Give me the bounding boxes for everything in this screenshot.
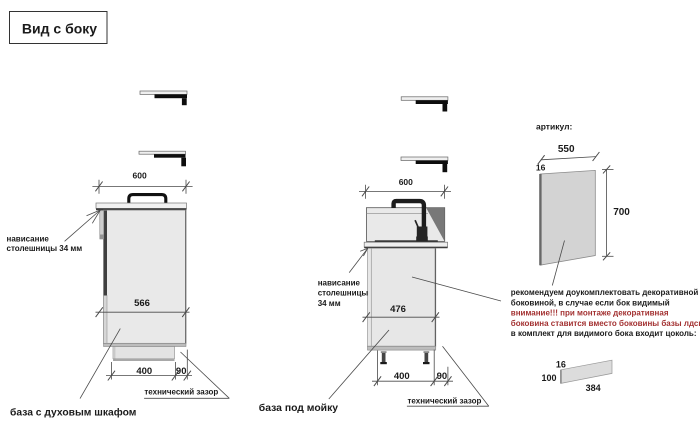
svg-text:16: 16 bbox=[536, 163, 546, 173]
svg-text:в комплект для видимого бока в: в комплект для видимого бока входит цоко… bbox=[511, 329, 697, 338]
svg-text:400: 400 bbox=[394, 371, 410, 382]
svg-text:100: 100 bbox=[542, 373, 557, 383]
svg-text:600: 600 bbox=[399, 177, 413, 187]
svg-text:технический зазор: технический зазор bbox=[408, 397, 482, 406]
svg-text:400: 400 bbox=[136, 366, 152, 377]
svg-text:384: 384 bbox=[586, 383, 601, 393]
svg-text:база с духовым шкафом: база с духовым шкафом bbox=[10, 407, 136, 419]
svg-text:база под мойку: база под мойку bbox=[259, 402, 338, 414]
svg-text:34 мм: 34 мм bbox=[318, 299, 341, 308]
svg-text:боковина ставится вместо боков: боковина ставится вместо боковины базы л… bbox=[511, 319, 700, 328]
svg-text:нависание: нависание bbox=[318, 278, 361, 287]
svg-text:90: 90 bbox=[437, 371, 448, 382]
svg-text:476: 476 bbox=[390, 304, 406, 315]
svg-text:столешницы: столешницы bbox=[318, 289, 369, 298]
svg-text:16: 16 bbox=[556, 359, 566, 369]
svg-text:боковиной, в случае если бок в: боковиной, в случае если бок видимый bbox=[511, 298, 670, 307]
svg-text:550: 550 bbox=[558, 144, 575, 155]
svg-text:600: 600 bbox=[133, 171, 147, 181]
svg-text:артикул:: артикул: bbox=[536, 122, 572, 132]
svg-text:технический зазор: технический зазор bbox=[144, 388, 218, 397]
svg-text:столешницы 34 мм: столешницы 34 мм bbox=[7, 244, 83, 253]
svg-text:566: 566 bbox=[134, 298, 150, 309]
svg-text:рекомендуем доукомплектовать д: рекомендуем доукомплектовать декоративно… bbox=[511, 288, 699, 297]
svg-text:90: 90 bbox=[176, 366, 187, 377]
svg-text:нависание: нависание bbox=[7, 235, 50, 244]
svg-text:Вид с боку: Вид с боку bbox=[22, 20, 97, 36]
svg-text:внимание!!! при монтаже декора: внимание!!! при монтаже декоративная bbox=[511, 309, 669, 318]
svg-text:700: 700 bbox=[613, 207, 630, 218]
